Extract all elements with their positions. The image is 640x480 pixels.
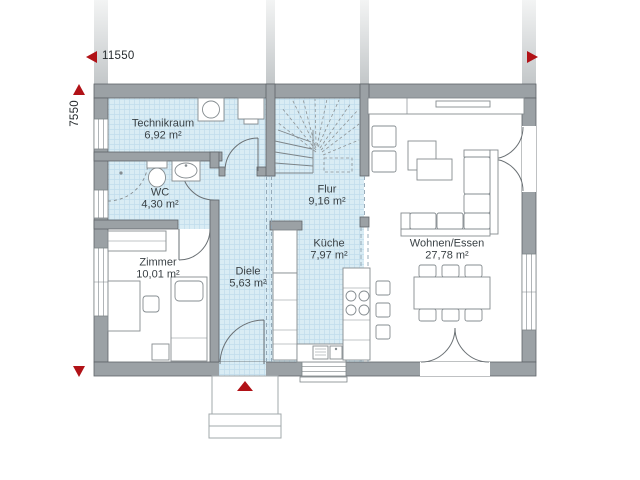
kitchen-peninsula-stove-icon: [343, 268, 370, 360]
entrance-porch: [209, 376, 281, 438]
wall-shadow-bars: [94, 0, 536, 84]
bed-icon: [171, 277, 207, 361]
room-area: 4,30 m²: [141, 199, 178, 211]
patio-door-opening: [522, 126, 536, 192]
door-zimmer: [179, 229, 210, 260]
room-name: Wohnen/Essen: [410, 239, 484, 251]
room-area: 6,92 m²: [132, 130, 194, 142]
room-area: 9,16 m²: [308, 196, 345, 208]
french-door-bottom: [421, 328, 489, 362]
room-label-zimmer: Zimmer 10,01 m²: [136, 258, 179, 281]
room-label-kueche: Küche 7,97 m²: [310, 239, 347, 262]
floor-plan: Technikraum 6,92 m² WC 4,30 m² Zimmer 10…: [0, 0, 640, 480]
kitchen-tall-units-icon: [273, 230, 297, 360]
bar-stools-icon: [376, 281, 390, 339]
window-technikraum: [94, 119, 108, 149]
coffee-tables-icon: [408, 141, 452, 180]
window-wc: [94, 190, 108, 218]
room-name: Flur: [308, 185, 345, 197]
room-name: Technikraum: [132, 119, 194, 131]
zimmer-furniture: [108, 231, 207, 361]
window-kueche: [300, 362, 347, 382]
wardrobe-icon: [108, 231, 166, 251]
dimension-arrow-left-icon: [86, 51, 97, 63]
sink-icon: [172, 161, 200, 181]
room-label-technikraum: Technikraum 6,92 m²: [132, 119, 194, 142]
kitchen-sink-counter-icon: [297, 344, 346, 362]
entrance-opening: [219, 362, 266, 376]
bedside-table-icon: [152, 344, 169, 360]
wohnen-furniture: [368, 98, 524, 321]
terrace-door-opening: [420, 362, 490, 376]
dimension-width-label: 11550: [102, 50, 135, 62]
room-name: Diele: [229, 267, 266, 279]
dimension-arrow-up-icon: [73, 84, 85, 95]
window-wohnen: [522, 254, 536, 330]
washing-machine-icon: [198, 98, 224, 121]
dining-table-icon: [414, 265, 490, 321]
room-name: Küche: [310, 239, 347, 251]
sideboard-icon: [368, 98, 524, 114]
room-name: Zimmer: [136, 258, 179, 270]
desk-icon: [108, 281, 159, 331]
room-label-diele: Diele 5,63 m²: [229, 267, 266, 290]
room-label-wc: WC 4,30 m²: [141, 188, 178, 211]
dimension-arrow-right-icon: [527, 51, 538, 63]
room-name: WC: [141, 188, 178, 200]
toilet-icon: [147, 161, 167, 187]
room-area: 5,63 m²: [229, 278, 266, 290]
window-zimmer: [94, 248, 108, 316]
room-label-wohnen-essen: Wohnen/Essen 27,78 m²: [410, 239, 484, 262]
armchairs-icon: [372, 126, 396, 172]
room-label-flur: Flur 9,16 m²: [308, 185, 345, 208]
room-area: 7,97 m²: [310, 250, 347, 262]
room-area: 27,78 m²: [410, 250, 484, 262]
dimension-height-label: 7550: [69, 100, 81, 127]
room-area: 10,01 m²: [136, 269, 179, 281]
dimension-arrow-down-icon: [73, 366, 85, 377]
